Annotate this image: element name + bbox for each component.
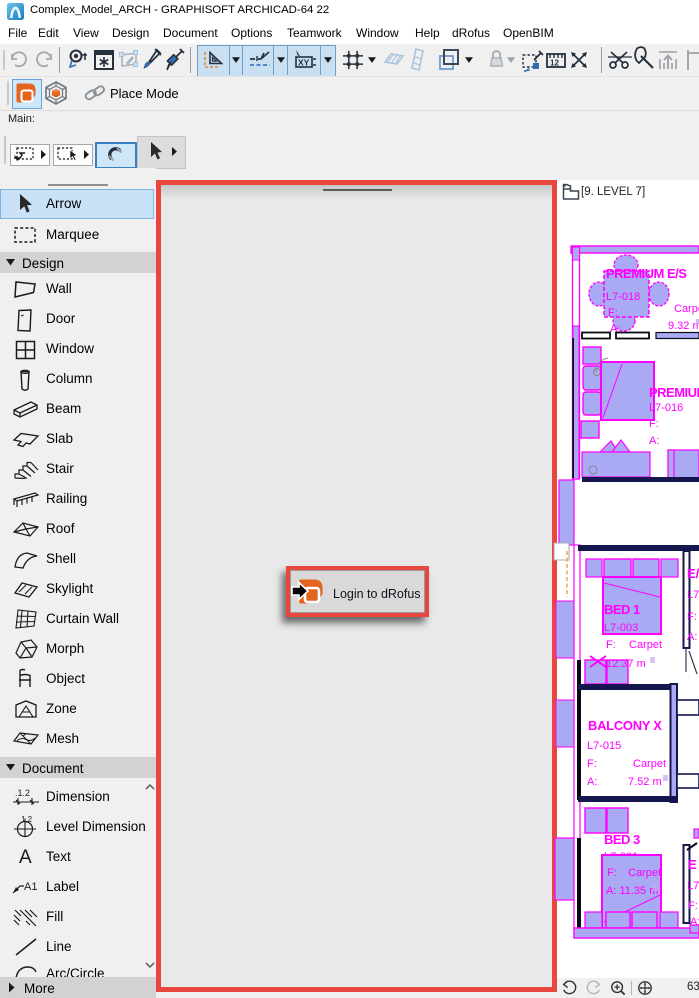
svg-text:9.32 m: 9.32 m xyxy=(668,320,699,332)
svg-text:PREMIUM: PREMIUM xyxy=(649,385,699,400)
svg-text:12: 12 xyxy=(550,59,559,68)
svg-text:L7-016: L7-016 xyxy=(649,402,683,414)
svg-text:L7: L7 xyxy=(687,880,699,892)
svg-text:BED 3: BED 3 xyxy=(604,832,640,847)
svg-text:BED 1: BED 1 xyxy=(604,602,640,617)
svg-text:E/S: E/S xyxy=(687,566,699,581)
svg-text:A:: A: xyxy=(587,776,597,788)
svg-text:F:: F: xyxy=(649,418,659,430)
svg-text:F:: F: xyxy=(606,639,616,651)
svg-text:L7-003: L7-003 xyxy=(604,622,638,634)
svg-text:Carpet: Carpet xyxy=(633,758,666,770)
svg-text:L7-015: L7-015 xyxy=(587,740,621,752)
svg-text:Carpet: Carpet xyxy=(629,639,662,651)
svg-text:PREMIUM E/S: PREMIUM E/S xyxy=(606,266,687,281)
svg-text:A:: A: xyxy=(649,435,659,447)
svg-text:L7-0: L7-0 xyxy=(687,589,699,601)
svg-text:.1.2: .1.2 xyxy=(15,788,30,798)
svg-text:XY: XY xyxy=(298,58,310,68)
svg-text:Carpet: Carpet xyxy=(628,867,661,879)
svg-text:F:: F: xyxy=(587,758,597,770)
svg-text:L7-018: L7-018 xyxy=(606,291,640,303)
svg-text:F:: F: xyxy=(608,307,618,319)
svg-text:A: A xyxy=(19,847,32,868)
svg-text:F:: F: xyxy=(688,900,698,912)
svg-text:A: 11.35 m: A: 11.35 m xyxy=(606,885,658,897)
svg-text:Carpet: Carpet xyxy=(674,303,699,315)
svg-text:12.37 m: 12.37 m xyxy=(606,658,646,670)
svg-text:BALCONY X: BALCONY X xyxy=(588,718,662,733)
svg-text:F:: F: xyxy=(687,611,697,623)
svg-text:F:: F: xyxy=(607,867,617,879)
svg-text:A:: A: xyxy=(687,631,697,643)
svg-text:A1: A1 xyxy=(24,881,37,893)
svg-text:1,2: 1,2 xyxy=(21,815,33,824)
svg-text:7.52 m: 7.52 m xyxy=(628,776,662,788)
svg-text:E: E xyxy=(688,857,697,872)
